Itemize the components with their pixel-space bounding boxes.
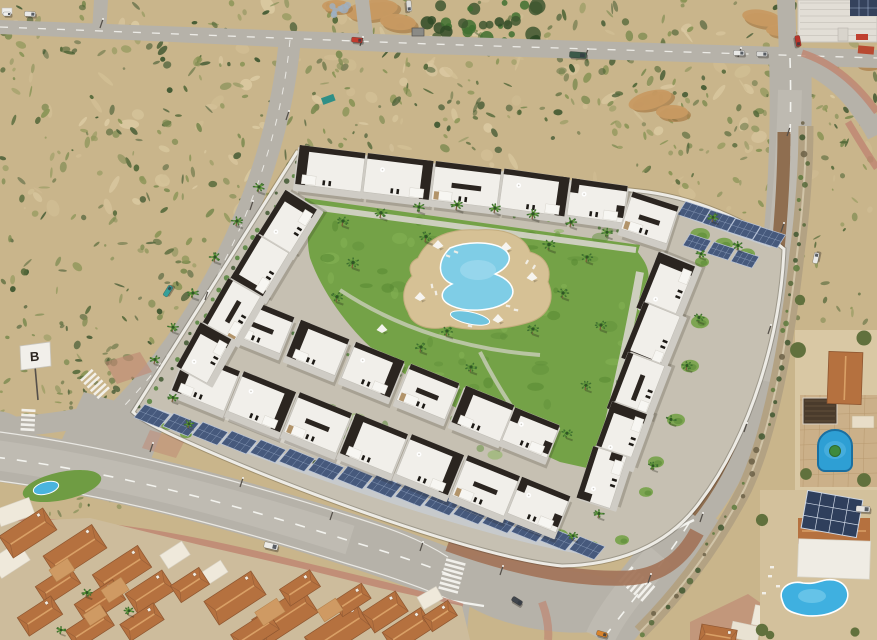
billboard-letter: B	[29, 349, 39, 365]
scene-canvas: B	[0, 0, 877, 640]
aerial-photo: B	[0, 0, 877, 640]
